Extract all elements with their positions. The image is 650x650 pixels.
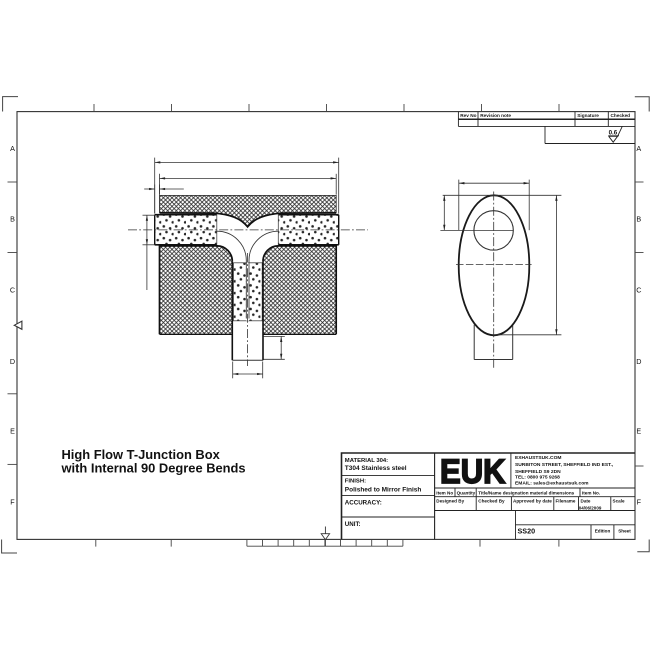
svg-text:Title/Name designation materia: Title/Name designation material dimensio… — [478, 491, 574, 496]
svg-text:Scale: Scale — [613, 499, 625, 504]
svg-text:D: D — [10, 357, 15, 366]
svg-text:E: E — [10, 427, 15, 436]
svg-text:Date: Date — [581, 499, 591, 504]
svg-text:F: F — [637, 498, 642, 507]
svg-text:C: C — [10, 286, 15, 295]
svg-text:EMAIL: sales@exhaustsuk.com: EMAIL: sales@exhaustsuk.com — [515, 481, 589, 487]
svg-text:ACCURACY:: ACCURACY: — [345, 499, 382, 506]
svg-text:MATERIAL 304:: MATERIAL 304: — [345, 458, 388, 464]
svg-text:Item No.: Item No. — [582, 491, 600, 496]
svg-text:Edition: Edition — [595, 529, 611, 534]
svg-text:Designed By: Designed By — [436, 499, 464, 504]
svg-text:Checked By: Checked By — [478, 499, 505, 504]
svg-text:E: E — [636, 427, 641, 436]
svg-text:FINISH:: FINISH: — [345, 478, 366, 484]
svg-text:Item No: Item No — [436, 491, 453, 496]
svg-text:SS20: SS20 — [518, 527, 536, 536]
svg-text:SHEFFIELD S9 2DN: SHEFFIELD S9 2DN — [515, 469, 561, 475]
svg-text:EXHAUSTSUK.COM: EXHAUSTSUK.COM — [515, 455, 561, 461]
svg-text:C: C — [636, 286, 641, 295]
svg-text:SURBITON STREET, SHEFFIELD IND: SURBITON STREET, SHEFFIELD IND EST., — [515, 462, 614, 468]
svg-text:UNIT:: UNIT: — [345, 521, 361, 528]
svg-text:B: B — [10, 215, 15, 224]
svg-text:A: A — [10, 144, 15, 153]
svg-text:Approved by date: Approved by date — [513, 499, 552, 504]
svg-text:T304 Stainless steel: T304 Stainless steel — [345, 465, 407, 472]
svg-text:F: F — [10, 498, 15, 507]
svg-text:with Internal 90 Degree Bends: with Internal 90 Degree Bends — [61, 460, 246, 475]
svg-text:Revision note: Revision note — [480, 113, 511, 118]
svg-text:D: D — [636, 357, 641, 366]
svg-text:TEL: 0800 975 9268: TEL: 0800 975 9268 — [515, 475, 560, 481]
svg-text:Sheet: Sheet — [618, 529, 631, 534]
svg-text:EUK: EUK — [440, 453, 506, 491]
svg-text:Checked: Checked — [611, 113, 631, 118]
svg-text:Signature: Signature — [577, 113, 599, 118]
svg-text:Filename: Filename — [556, 499, 576, 504]
svg-text:B: B — [636, 215, 641, 224]
svg-text:A: A — [636, 144, 641, 153]
svg-text:0.6: 0.6 — [609, 129, 618, 136]
svg-text:Quantity: Quantity — [457, 491, 476, 496]
svg-text:Rev No: Rev No — [460, 113, 476, 118]
svg-text:04/06/2009: 04/06/2009 — [579, 506, 602, 511]
svg-text:Polished to Mirror Finish: Polished to Mirror Finish — [345, 486, 422, 493]
